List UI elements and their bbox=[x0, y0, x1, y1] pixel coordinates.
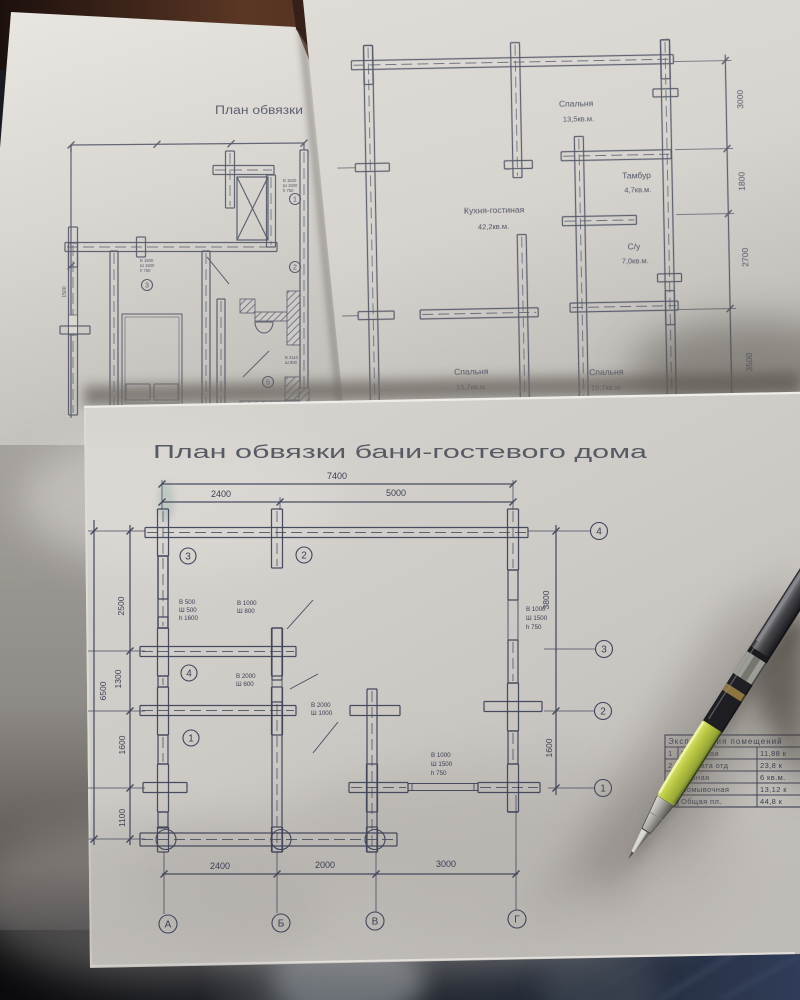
svg-text:4: 4 bbox=[596, 527, 602, 538]
svg-text:2700: 2700 bbox=[740, 247, 750, 266]
svg-text:С/у: С/у bbox=[627, 241, 641, 251]
svg-text:Кухня-гостиная: Кухня-гостиная bbox=[464, 204, 525, 215]
svg-text:Г: Г bbox=[514, 915, 520, 926]
svg-text:3: 3 bbox=[185, 552, 191, 563]
svg-text:В 1000: В 1000 bbox=[431, 752, 451, 759]
svg-text:2500: 2500 bbox=[116, 596, 126, 615]
svg-text:h 750: h 750 bbox=[140, 268, 151, 273]
svg-text:Ш 1500: Ш 1500 bbox=[431, 761, 453, 768]
svg-text:1: 1 bbox=[188, 734, 194, 745]
svg-text:1100: 1100 bbox=[117, 809, 127, 828]
svg-text:7400: 7400 bbox=[327, 471, 347, 481]
svg-text:2: 2 bbox=[600, 707, 606, 718]
svg-text:1: 1 bbox=[600, 784, 606, 795]
svg-text:В 2000: В 2000 bbox=[236, 673, 256, 680]
svg-text:Ш 800: Ш 800 bbox=[237, 608, 255, 615]
svg-text:7,0кв.м.: 7,0кв.м. bbox=[622, 256, 649, 266]
svg-text:Ш 1500: Ш 1500 bbox=[526, 615, 548, 622]
svg-text:План обвязки бани-гостевого до: План обвязки бани-гостевого дома bbox=[153, 441, 648, 462]
svg-text:23,8 к: 23,8 к bbox=[760, 761, 783, 770]
svg-text:6 кв.м.: 6 кв.м. bbox=[760, 773, 786, 782]
svg-text:Б: Б bbox=[278, 919, 285, 930]
svg-text:h 1600: h 1600 bbox=[179, 615, 198, 622]
svg-text:Ш 1000: Ш 1000 bbox=[311, 710, 333, 717]
svg-text:2400: 2400 bbox=[211, 489, 231, 499]
svg-text:h 750: h 750 bbox=[431, 770, 447, 777]
svg-text:В 1000: В 1000 bbox=[237, 600, 257, 607]
svg-text:В: В bbox=[372, 917, 379, 928]
svg-text:4: 4 bbox=[186, 669, 192, 680]
svg-text:h 750: h 750 bbox=[283, 188, 294, 193]
svg-text:6500: 6500 bbox=[98, 681, 108, 700]
svg-text:1500: 1500 bbox=[62, 286, 68, 297]
svg-text:2: 2 bbox=[301, 551, 307, 562]
svg-text:Ш 600: Ш 600 bbox=[236, 681, 254, 688]
svg-text:1600: 1600 bbox=[544, 738, 554, 757]
svg-text:3800: 3800 bbox=[541, 590, 551, 609]
svg-text:Ш 800: Ш 800 bbox=[285, 360, 298, 365]
svg-text:42,2кв.м.: 42,2кв.м. bbox=[478, 222, 509, 232]
svg-text:А: А bbox=[165, 920, 172, 931]
svg-text:2000: 2000 bbox=[315, 860, 335, 870]
svg-text:В 2000: В 2000 bbox=[311, 702, 331, 709]
svg-text:13,12 к: 13,12 к bbox=[760, 785, 787, 794]
svg-text:Спальня: Спальня bbox=[454, 366, 489, 377]
svg-text:1300: 1300 bbox=[113, 669, 123, 688]
svg-text:План обвязки: План обвязки bbox=[215, 105, 303, 117]
svg-text:Ш 500: Ш 500 bbox=[179, 607, 197, 614]
svg-text:3000: 3000 bbox=[735, 90, 745, 109]
svg-text:3: 3 bbox=[145, 283, 149, 290]
svg-text:1800: 1800 bbox=[736, 172, 746, 191]
svg-text:Тамбур: Тамбур bbox=[622, 170, 651, 181]
svg-text:44,8 к: 44,8 к bbox=[760, 797, 783, 806]
svg-text:1600: 1600 bbox=[117, 735, 127, 754]
svg-text:5000: 5000 bbox=[386, 488, 406, 498]
svg-text:3000: 3000 bbox=[436, 859, 456, 869]
svg-text:Спальня: Спальня bbox=[559, 98, 594, 109]
svg-text:В 500: В 500 bbox=[179, 599, 196, 606]
svg-text:2: 2 bbox=[293, 265, 297, 272]
svg-text:4,7кв.м.: 4,7кв.м. bbox=[624, 185, 651, 195]
svg-text:1: 1 bbox=[293, 197, 297, 204]
svg-text:3: 3 bbox=[601, 645, 607, 656]
svg-text:13,5кв.м.: 13,5кв.м. bbox=[563, 114, 594, 124]
svg-text:h 750: h 750 bbox=[526, 624, 542, 631]
svg-text:2400: 2400 bbox=[210, 861, 230, 871]
